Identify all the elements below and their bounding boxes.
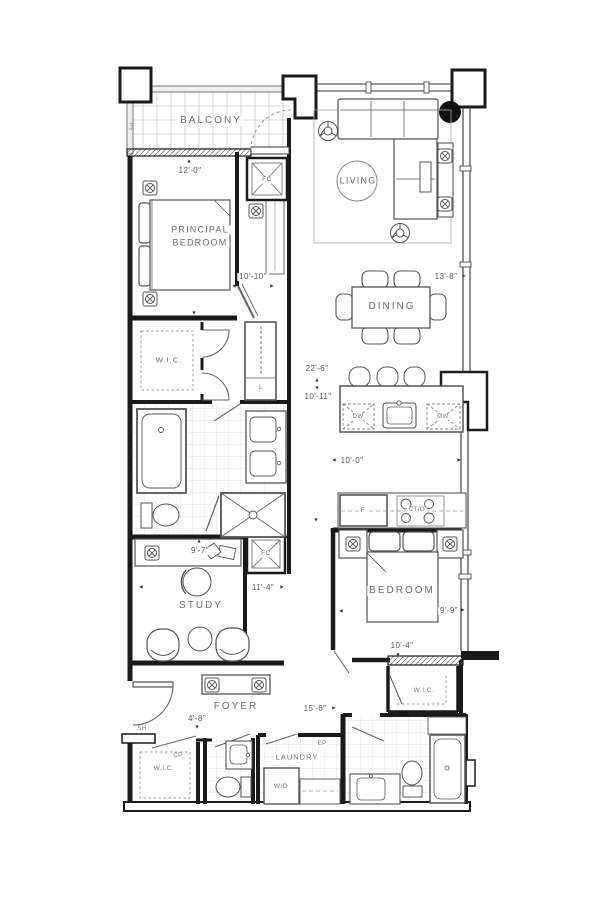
pillow <box>369 532 400 551</box>
bedroom-door <box>334 651 349 673</box>
room-label-dining: DINING <box>367 302 418 312</box>
sofa <box>338 99 438 139</box>
label-dishwasher: DW <box>351 414 366 420</box>
wic2-door <box>390 676 402 704</box>
label-ep: EP <box>315 741 328 747</box>
left-arrow-icon: ◄ <box>231 284 236 290</box>
armchair <box>147 629 179 661</box>
armchair <box>216 628 249 661</box>
right-arrow-icon: ► <box>269 284 274 290</box>
down-arrow-icon: ▼ <box>395 653 400 659</box>
toilet <box>216 777 240 797</box>
dim-unit-length: 22'-6" <box>306 365 329 373</box>
room-label-wic-foyer: W.I.C. <box>152 766 177 773</box>
left-arrow-icon: ◄ <box>331 458 336 464</box>
down-arrow-icon: ▼ <box>314 386 319 392</box>
label-cp: CP <box>171 753 184 759</box>
living-room <box>314 99 453 243</box>
stool <box>349 367 370 387</box>
balcony-rail-top <box>150 86 287 92</box>
dim-kitchen: 10'-0" <box>341 457 364 465</box>
room-label-living: LIVING <box>340 177 377 186</box>
right-arrow-icon: ► <box>460 608 465 614</box>
dim-study-length: 11'-4" <box>252 584 274 592</box>
right-arrow-icon: ► <box>461 274 466 280</box>
floor-plan: BALCONY PRINCIPAL BEDROOM LIVING DINING … <box>0 0 612 900</box>
tub-deck <box>428 717 466 734</box>
toilet-2 <box>402 761 422 785</box>
stool <box>404 367 425 387</box>
side-table <box>188 627 212 651</box>
stool <box>377 367 398 387</box>
laundry-counter <box>300 779 340 804</box>
up-arrow-icon: ▲ <box>314 378 319 384</box>
up-arrow-icon: ▲ <box>186 159 191 165</box>
label-microwave: MW <box>435 414 451 420</box>
column-balcony-right <box>283 76 316 118</box>
label-pipe-space: PS <box>128 123 133 131</box>
left-arrow-icon: ◄ <box>338 609 343 615</box>
room-label-wic-principal: W.I.C. <box>154 356 184 364</box>
down-arrow-icon: ▼ <box>194 725 199 731</box>
toilet <box>141 503 152 528</box>
tv <box>420 162 431 192</box>
dim-dining: 10'-11" <box>304 393 331 401</box>
label-fc-study: FC <box>259 551 273 558</box>
room-label-principal-bedroom-1: PRINCIPAL <box>169 226 231 235</box>
dim-study-width: 9'-7" <box>189 547 211 555</box>
up-arrow-icon: ▲ <box>196 539 201 545</box>
room-label-laundry: LAUNDRY <box>274 753 321 761</box>
dim-living: 13'-8" <box>435 273 458 281</box>
kitchen-counter <box>338 493 466 528</box>
dim-balcony: 12'-0" <box>179 167 202 175</box>
corner-column-top-left <box>120 68 151 102</box>
pillow <box>403 532 434 551</box>
room-label-foyer: FOYER <box>214 702 258 712</box>
label-cooktop-oven: CT/O <box>407 507 427 513</box>
dim-bedroom-length: 10'-4" <box>391 642 414 650</box>
room-label-balcony: BALCONY <box>178 116 244 126</box>
solid-column-marker <box>439 101 461 123</box>
dim-principal-bedroom: 10'-10" <box>237 273 269 281</box>
right-arrow-icon: ► <box>279 585 284 591</box>
down-arrow-icon: ▼ <box>313 518 318 524</box>
room-label-bedroom: BEDROOM <box>367 586 437 596</box>
label-washer-dryer: W/D <box>272 784 290 791</box>
desk-chair <box>183 568 211 596</box>
balcony-door <box>251 147 289 154</box>
wic3-door <box>152 736 196 748</box>
room-label-study: STUDY <box>179 601 223 611</box>
room-label-wic-bedroom: W.I.C. <box>412 688 437 695</box>
sliding-door-principal <box>238 286 254 318</box>
dim-foyer-length: 15'-6" <box>304 705 327 713</box>
label-linen-closet: L <box>257 385 265 392</box>
label-fc-balcony: FC <box>260 177 274 184</box>
room-label-principal-bedroom-2: BEDROOM <box>171 239 230 248</box>
entry-door <box>133 682 173 687</box>
corner-column-top-right <box>452 70 485 107</box>
dim-bedroom-width: 9'-9" <box>438 607 460 615</box>
label-fridge: F <box>359 508 367 515</box>
dim-foyer-width: 4'-8" <box>188 715 206 723</box>
down-arrow-icon: ▼ <box>191 311 196 317</box>
floor-plan-drawing <box>0 0 612 900</box>
left-arrow-icon: ◄ <box>138 585 143 591</box>
right-arrow-icon: ► <box>456 458 461 464</box>
label-sh: SH <box>135 726 148 732</box>
right-arrow-icon: ► <box>331 706 336 712</box>
